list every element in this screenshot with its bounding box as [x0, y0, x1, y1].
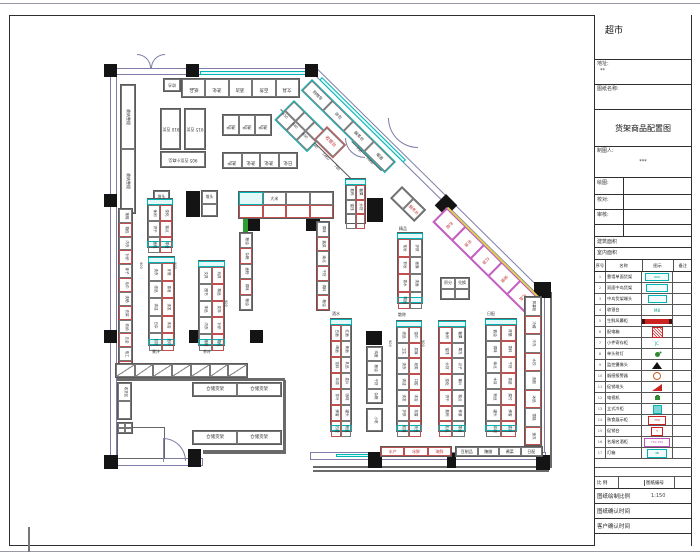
shelf-cell: 洗衣 [149, 263, 162, 281]
legend-name: 立式冷柜 [605, 404, 642, 414]
sign-row: 校对: [595, 195, 691, 210]
shelf-cell: 海鲜 [428, 447, 451, 456]
legend-row: 7小件寄存柜JC [595, 338, 692, 349]
shelf-label: 麦片 [507, 426, 511, 433]
legend-symbol: M8 [654, 308, 660, 313]
shelf-cell: 红酒 [341, 325, 351, 341]
shelf-fixture: 915 百货 [184, 108, 206, 150]
shelf-cell: 沐浴 [162, 316, 175, 334]
shelf-label: 化妆 [402, 244, 406, 251]
legend-no: 7 [595, 341, 605, 345]
legend-row: 5生鲜风幕柜 [595, 316, 692, 327]
shelf-label: 口腔 [413, 378, 417, 385]
number-label: 图纸编号 [644, 480, 674, 486]
shelf-label: 饰品 [204, 305, 208, 312]
shelf-label: 收货区 [123, 387, 127, 398]
shelf-cell: 洗衣 [397, 358, 409, 374]
shelf-label: 粮油 [373, 365, 377, 372]
shelf-label: 咖啡 [344, 394, 348, 401]
shelf-cell: 化妆 [398, 239, 410, 257]
shelf-label: 文具 [283, 86, 292, 91]
shelf-label: 腌腊 [484, 450, 492, 454]
shelf-cell: 休闲 [148, 205, 160, 221]
shelf-cell: 糖果 [452, 327, 465, 343]
shelf-label: 干货 [321, 270, 325, 277]
shelf-label: 名烟 [445, 220, 453, 229]
shelf-cell: 小吃 [367, 409, 382, 431]
shelf-label: 糕点 [164, 226, 168, 233]
shelf-cell: 陈醋 [501, 325, 516, 341]
shelf-cell: 麦片 [501, 421, 516, 437]
shelf-label: 905 百货小商品 [169, 158, 198, 162]
dimension-text: 900 [173, 262, 177, 269]
legend-name: 名烟名酒柜 [605, 437, 642, 447]
shelf-label: 罐头 [492, 410, 496, 417]
shelf-label: 洗化 [213, 86, 222, 91]
shelf-cell [455, 289, 469, 300]
shelf-label: 海鲜 [435, 450, 443, 454]
legend-header-cell: 图示 [642, 260, 673, 271]
shelf-label: 南北 [492, 362, 496, 369]
ratio-row: 图纸绘制比例 1:150 [595, 489, 691, 504]
shelf-cell: 积分 [441, 278, 455, 289]
shelf-cell: 鸡蛋 [367, 347, 382, 361]
legend-no: 3 [595, 297, 605, 301]
shelf-cell: 沐浴 [409, 390, 421, 406]
shelf-cell: 腌腊 [478, 447, 500, 456]
shelf-cell: 文具 [276, 79, 299, 97]
cyan-wall-band [200, 71, 318, 75]
shelf-label: 综合 [168, 83, 176, 87]
legend-no: 10 [595, 374, 605, 378]
shelf-label: 保健 [500, 274, 508, 283]
shelf-label: 袜子 [124, 268, 128, 275]
fixture-grid: 水产冰鲜海鲜 [381, 447, 451, 456]
shelf-fixture: 905 百货小商品 [160, 151, 206, 168]
shelf-cell: 收货区 [118, 383, 131, 401]
legend-symbol-cell: 750 450 [642, 437, 673, 447]
project-title: 超市 [605, 23, 623, 36]
legend-no: 1 [595, 275, 605, 279]
shelf-label: 洗发 [166, 303, 170, 310]
sign-row [595, 225, 691, 237]
shelf-cell: 散称 [346, 185, 356, 200]
column [186, 64, 199, 77]
shelf-fixture: 纸品洗化清洁百货文具 [181, 78, 300, 98]
scale-value [618, 477, 644, 488]
shelf-label: 冷冻 [531, 340, 535, 347]
fixture-grid: 洗衣牙膏纸品香皂清洁洗发日杂沐浴百货纸巾 [149, 263, 174, 351]
drawing-name-label: 图纸名称: [597, 87, 619, 93]
shelf-label: 休闲 [444, 331, 448, 338]
shelf-cell: 面包 [148, 237, 160, 253]
shelf-label: 散称 [444, 410, 448, 417]
legend-no: 8 [595, 352, 605, 356]
shelf-label: 蜜饯 [444, 347, 448, 354]
fixture-grid: 粮油杂粮面粉调味粮油 [240, 233, 252, 310]
shelf-cell: 纸品 [397, 327, 409, 343]
shelf-label: 收纳 [124, 323, 128, 330]
shelf-cell: 日化 [279, 153, 298, 168]
shelf-label: 酱菜 [506, 450, 514, 454]
shelf-cell: 冷冻 [525, 334, 541, 353]
shelf-cell: 花露 [409, 406, 421, 422]
legend-row: 4收银台M8 [595, 305, 692, 316]
shelf-label: 雪糕 [531, 414, 535, 421]
shelf-label: 存包 [334, 112, 343, 120]
legend-row-empty [595, 468, 692, 477]
legend-symbol [646, 284, 668, 292]
shelf-cell: 饮料 [331, 357, 341, 373]
shelf-label: 麦片 [344, 378, 348, 385]
shelf-label: 针织 [216, 322, 220, 329]
shelf-label: 饮料 [334, 362, 338, 369]
shelf-cell: 白酒 [331, 325, 341, 341]
shelf-cell: 收纳整理 [121, 149, 135, 213]
shelf-cell [191, 364, 210, 377]
shelf-label: 饼干 [152, 226, 156, 233]
shelf-cell: 啤酒 [331, 341, 341, 357]
sign-row-divider [623, 195, 624, 209]
shelf-label: 啤酒 [334, 346, 338, 353]
confirm2-row: 客户确认时间 [595, 519, 691, 534]
fixture-grid: 收货区 [118, 383, 131, 419]
shelf-cell: 仓储货架 [237, 383, 281, 396]
shelf-cell: 洗晒 [119, 292, 132, 306]
legend-symbol-cell [642, 393, 673, 403]
drawing-title: 货架商品配置图 [595, 123, 691, 134]
shelf-cell: 麦片 [341, 373, 351, 389]
shelf-label: 南北 [321, 255, 325, 262]
column [104, 64, 117, 77]
legend-symbol-cell [642, 404, 673, 414]
shelf-label: 白酒 [334, 330, 338, 337]
shelf-fixture [115, 363, 248, 378]
shelf-label: 风幕柜 [531, 301, 535, 312]
legend-row: 8单头射灯 [595, 349, 692, 360]
shelf-cell: 粮油 [240, 295, 252, 310]
legend-name: 中岛货架端头 [605, 294, 642, 304]
shelf-cell: 洗护 [223, 153, 242, 168]
sign-row-label: 审核: [597, 213, 609, 219]
shelf-label: 零食 [164, 242, 168, 249]
legend-symbol-cell [642, 382, 673, 392]
column [188, 449, 201, 467]
shelf-fixture: 堆头 [201, 190, 218, 217]
address-label: 地址: [597, 62, 609, 68]
shelf-label: 五金 [124, 337, 128, 344]
shelf-fixture: 拖鞋箱包内衣针织袜子毛巾洗晒衣架收纳五金电工杂货 [118, 208, 133, 376]
shelf-cell [116, 364, 135, 377]
shelf-cell: 茶叶 [331, 389, 341, 405]
shelf-cell: 粉丝 [486, 389, 501, 405]
legend-row: 11促销堆头 [595, 382, 692, 393]
shelf-label: 速冻 [531, 432, 535, 439]
legend-row: 15促销台T [595, 426, 692, 437]
shelf-cell: 蜂蜜 [501, 405, 516, 421]
shelf-label: 洗发 [401, 394, 405, 401]
shelf-cell: 零食 [452, 421, 465, 437]
shelf-label: 百货 [154, 339, 158, 346]
title-block-address-row: 地址: ** [595, 60, 691, 85]
shelf-label: 名酒 [464, 238, 472, 247]
shelf-label: 清洁 [236, 86, 245, 91]
shelf-cell: 木耳 [486, 373, 501, 389]
shelf-cell: 洗面 [410, 274, 422, 292]
shelf-cell: 洗发 [162, 298, 175, 316]
shelf-fixture: 文具玩具图书精品饰品发饰内衣针织拖鞋箱包 [198, 260, 225, 346]
shelf-label: 零食 [457, 426, 461, 433]
legend-no: 4 [595, 308, 605, 312]
shelf-label: 仓储货架 [250, 387, 268, 392]
shelf-cell: 发饰 [212, 301, 225, 318]
shelf-label: 茶叶 [334, 394, 338, 401]
shelf-cell: 调味 [240, 279, 252, 294]
shelf-label: 仓储货架 [250, 435, 268, 440]
shelf-label: 红酒 [482, 256, 490, 265]
shelf-label: 膨化 [444, 378, 448, 385]
shelf-label: 洗衣 [154, 268, 158, 275]
legend-symbol: 750 [648, 416, 666, 425]
shelf-fixture: 豆制品腌腊酱菜日配 [455, 446, 543, 457]
column [536, 455, 550, 470]
legend-symbol: JC [655, 341, 659, 346]
legend-row: 9监控摄像头 [595, 360, 692, 371]
shelf-cell: 彩妆 [398, 257, 410, 275]
shelf-cell [172, 364, 191, 377]
shelf-label: 日杂 [154, 321, 158, 328]
shelf-cell: 糖果 [356, 185, 366, 200]
wall-line [203, 450, 283, 454]
shelf-cell: 内衣 [199, 317, 212, 334]
shelf-cell: 洗化 [260, 153, 279, 168]
shelf-label: 鸡蛋 [373, 351, 377, 358]
legend-no: 15 [595, 429, 605, 433]
ratio-label: 图纸绘制比例 [595, 492, 651, 500]
shelf-label: 洗护 [243, 123, 252, 128]
shelf-cell: 冰鲜 [404, 447, 427, 456]
shelf-cell [441, 289, 455, 300]
legend-row: 1靠墙单面货架900 [595, 272, 692, 283]
shelf-cell: 蜂蜜 [331, 405, 341, 421]
fixture-grid: 收银台 [315, 127, 345, 157]
shelf-label: 尿裤 [413, 347, 417, 354]
shelf-cell: 箱包 [119, 223, 132, 237]
shelf-cell: 纸品 [182, 79, 205, 97]
legend-symbol [655, 396, 660, 400]
shelf-cell: 收银台 [315, 127, 345, 157]
shelf-label: 饼干 [444, 394, 448, 401]
shelf-cell: 仓储货架 [193, 383, 237, 396]
shelf-label: 洗护 [227, 123, 236, 128]
shelf-label: 内衣 [204, 322, 208, 329]
shelf-label: 护肤 [401, 410, 405, 417]
shelf-label: 蜂蜜 [507, 410, 511, 417]
legend-name: 熟食展示柜 [605, 415, 642, 425]
shelf-label: 内衣 [124, 240, 128, 247]
shelf-label: 炒货 [444, 363, 448, 370]
shelf-cell: 粉丝 [341, 421, 351, 437]
legend-no: 6 [595, 330, 605, 334]
shelf-label: 910 百货 [162, 127, 179, 131]
shelf-label: 仓储货架 [206, 387, 224, 392]
legend-symbol-cell: 4B [642, 448, 673, 458]
shelf-label: 箱包 [216, 339, 220, 346]
shelf-label: 发饰 [216, 305, 220, 312]
legend-symbol: 4B [647, 449, 667, 458]
shelf-cell: 炒货 [356, 200, 366, 215]
shelf-cell: 百货 [252, 79, 275, 97]
legend-symbol-cell [642, 360, 673, 370]
shelf-fixture: 化妆护肤彩妆面膜香水洗面精品 [397, 232, 423, 304]
column [366, 331, 382, 345]
shelf-label: 礼包 [444, 426, 448, 433]
fixture-grid: 综合 [164, 79, 180, 91]
shelf-cell: 干货 [317, 266, 329, 281]
shelf-fixture: 休闲糖果蜜饯果冻炒货瓜子膨化薯片饼干糕点散称称重礼包零食 [438, 320, 466, 432]
shelf-label: 纸巾 [166, 339, 170, 346]
shelf-label: 洗晒 [124, 295, 128, 302]
shelf-cell: 酱菜 [499, 447, 521, 456]
shelf-label: 大米 [270, 197, 278, 201]
shelf-fixture: 洗衣牙膏纸品香皂清洁洗发日杂沐浴百货纸巾 [148, 256, 175, 346]
title-block-name-row: 图纸名称: [595, 85, 691, 110]
fixture-grid: 酱油陈醋调味香料南北干货木耳香菇粉丝腐竹罐头蜂蜜冲调麦片 [486, 325, 516, 437]
legend-no: 16 [595, 440, 605, 444]
shelf-cell: 兑换 [455, 278, 469, 289]
shelf-label: 蜜饯 [349, 203, 353, 210]
fixture-grid: 915 百货 [185, 109, 205, 149]
shelf-fixture: 水产冰鲜海鲜 [380, 446, 452, 457]
shelf-cell: 915 百货 [185, 109, 205, 149]
sign-row-label: 建筑面积 [597, 240, 617, 246]
legend-row: 6配电箱 [595, 327, 692, 338]
free-label: 酒水 [332, 311, 340, 317]
sign-row-label: 绘图: [597, 181, 609, 187]
shelf-cell: 905 百货小商品 [161, 152, 205, 167]
shelf-cell: 文具 [199, 267, 212, 284]
shelf-cell: 咖啡 [341, 389, 351, 405]
legend-name: 双面中岛货架 [605, 283, 642, 293]
shelf-label: 洗护 [228, 158, 237, 163]
legend-name: 促销堆头 [605, 382, 642, 392]
shelf-label: 洗衣 [401, 363, 405, 370]
column [305, 64, 318, 77]
shelf-label: 休闲 [152, 210, 156, 217]
shelf-label: 糕点 [457, 394, 461, 401]
door-arc [151, 54, 165, 68]
shelf-fixture: 休闲膨化饼干糕点面包零食 [147, 198, 173, 248]
dimension-text: 900 [139, 262, 143, 269]
column [250, 330, 263, 343]
free-label: 果汁 [152, 349, 160, 355]
shelf-label: 木耳 [492, 378, 496, 385]
shelf-fixture: 小吃 [366, 408, 383, 432]
shelf-cell: 皂类 [409, 358, 421, 374]
legend-name: 收银台 [605, 305, 642, 315]
sign-row-divider [623, 225, 624, 236]
title-block-drafter-row: 制图人: *** [595, 147, 691, 178]
shelf-cell: 针织 [119, 250, 132, 264]
shelf-label: 冷藏 [531, 321, 535, 328]
shelf-cell: 仓储货架 [237, 431, 281, 444]
legend-symbol: 900 [645, 273, 669, 281]
shelf-cell: 洗护 [223, 115, 239, 135]
shelf-label: 乳品 [344, 362, 348, 369]
legend-name: 生鲜风幕柜 [605, 316, 642, 326]
shelf-label: 冲调 [334, 378, 338, 385]
legend-symbol-cell [642, 294, 673, 304]
shelf-cell: 酱菜 [317, 237, 329, 252]
fixture-grid: 白酒红酒啤酒黄酒饮料乳品冲调麦片茶叶咖啡蜂蜜罐头方便粉丝 [331, 325, 351, 437]
scale-label: 比 例 [595, 480, 618, 486]
shelf-label: 水饺 [531, 358, 535, 365]
legend-row: 2双面中岛货架 [595, 283, 692, 294]
legend-no: 14 [595, 418, 605, 422]
shelf-label: 香皂 [166, 286, 170, 293]
shelf-label: 沐浴 [166, 321, 170, 328]
shelf-label: 陈醋 [507, 330, 511, 337]
dimension-text: 900 [388, 340, 392, 347]
shelf-fixture: 风幕柜冷藏冷冻水饺汤圆冰品雪糕速冻 [524, 296, 542, 446]
shelf-cell [239, 192, 263, 205]
shelf-cell: 水产 [381, 447, 404, 456]
fixture-grid: 调味酱菜南北干货调料粮油 [317, 222, 329, 310]
legend-symbol [652, 362, 662, 369]
shelf-cell: 综合 [164, 79, 180, 91]
shelf-label: 清洁 [401, 378, 405, 385]
shelf-cell [346, 214, 356, 229]
fixture-grid: 休闲糖果蜜饯果冻炒货瓜子膨化薯片饼干糕点散称称重礼包零食 [439, 327, 465, 437]
shelf-cell: 袜子 [119, 264, 132, 278]
column [104, 194, 117, 207]
shelf-cell: 拖鞋 [119, 209, 132, 223]
column [104, 330, 117, 343]
shelf-label: 彩妆 [402, 262, 406, 269]
shelf-cell: 南北 [317, 251, 329, 266]
number-value [674, 477, 691, 488]
shelf-cell: 清洁 [397, 374, 409, 390]
shelf-cell: 香菇 [501, 373, 516, 389]
dimension-text: 780 [333, 164, 341, 172]
sign-row: 审核: [595, 210, 691, 225]
shelf-cell: 堆头 [202, 191, 217, 204]
shelf-fixture: 洗护洗化洗化日化 [222, 152, 298, 169]
legend-name: 促销台 [605, 426, 642, 436]
shelf-cell [263, 205, 287, 218]
mark [163, 438, 164, 462]
shelf-cell: 收纳整理 [121, 85, 135, 149]
shelf-cell: 蜜饯 [439, 343, 452, 359]
fixture-grid: 大米 [239, 192, 333, 218]
shelf-label: 收纳整理 [126, 173, 130, 189]
free-label: 日配 [487, 311, 495, 317]
shelf-cell: 乳品 [341, 357, 351, 373]
shelf-fixture: 910 百货 [160, 108, 181, 150]
shelf-label: 牙膏 [166, 268, 170, 275]
shelf-fixture: 服务台 [390, 186, 426, 222]
shelf-label: 皂类 [413, 363, 417, 370]
shelf-label: 小吃 [373, 417, 377, 424]
shelf-cell: 箱包 [212, 334, 225, 351]
shelf-fixture: 纸品湿巾卫生尿裤洗衣皂类清洁口腔洗发沐浴护肤花露蚊香杀虫 [396, 320, 422, 432]
sign-row-divider [623, 178, 624, 194]
shelf-cell: 散称 [439, 406, 452, 422]
shelf-fixture: 酱油陈醋调味香料南北干货木耳香菇粉丝腐竹罐头蜂蜜冲调麦片 [485, 318, 517, 432]
sign-row: 室内面积 [595, 248, 691, 260]
shelf-cell [210, 364, 229, 377]
shelf-label: 瓜子 [457, 363, 461, 370]
